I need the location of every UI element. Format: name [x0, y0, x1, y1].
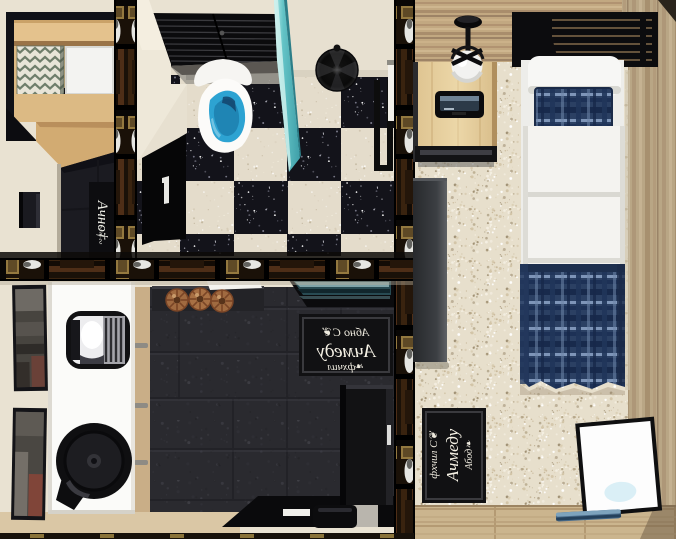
- svg-text:❧фхчил: ❧фхчил: [327, 361, 365, 373]
- svg-text:Ачмеду: Ачмеду: [443, 428, 462, 482]
- svg-text:фхчил С❦: фхчил С❦: [428, 431, 440, 479]
- svg-text:Абно С❦: Абно С❦: [322, 325, 370, 339]
- svg-text:Абод❧: Абод❧: [464, 440, 475, 471]
- svg-text:∾❧∾: ∾❧∾: [96, 224, 105, 244]
- svg-text:Ачмеду: Ачмеду: [316, 341, 377, 362]
